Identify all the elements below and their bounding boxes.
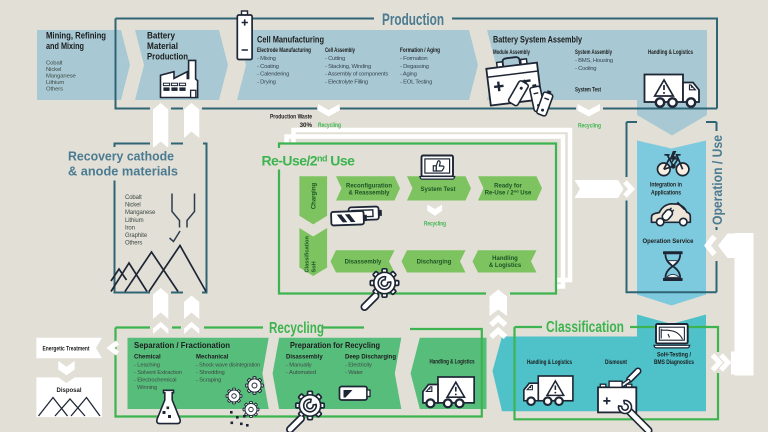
svg-text:- Leaching: - Leaching: [134, 363, 160, 369]
svg-text:- Aging: - Aging: [400, 72, 417, 78]
svg-text:Operation Service: Operation Service: [643, 238, 695, 245]
svg-text:Production: Production: [147, 52, 188, 62]
svg-text:Handling & Logistics: Handling & Logistics: [430, 360, 475, 366]
svg-text:- Scraping: - Scraping: [196, 378, 221, 384]
svg-text:Recycling: Recycling: [269, 320, 324, 337]
svg-text:- Shredding: - Shredding: [196, 370, 225, 376]
svg-text:and Mixing: and Mixing: [46, 41, 84, 51]
svg-text:Cobalt: Cobalt: [46, 61, 63, 67]
svg-text:Discharging: Discharging: [417, 260, 452, 266]
svg-text:- Automated: - Automated: [286, 370, 316, 376]
svg-text:- Calendering: - Calendering: [257, 72, 289, 78]
svg-text:Battery System Assembly: Battery System Assembly: [493, 35, 583, 46]
svg-text:Manganese: Manganese: [125, 210, 156, 216]
svg-text:Recovery cathode: Recovery cathode: [68, 149, 174, 164]
svg-text:Operation / Use: Operation / Use: [710, 135, 725, 225]
svg-text:- Coating: - Coating: [257, 64, 279, 70]
svg-text:- BMS, Housing: - BMS, Housing: [575, 58, 613, 64]
svg-text:Nickel: Nickel: [46, 67, 61, 73]
svg-text:Re-Use / 2nd Use: Re-Use / 2nd Use: [485, 189, 532, 197]
svg-text:System Test: System Test: [421, 187, 456, 193]
svg-text:Dismount: Dismount: [605, 360, 627, 366]
svg-text:Recycling: Recycling: [578, 123, 601, 130]
svg-text:Disassembly: Disassembly: [286, 355, 323, 361]
svg-text:Cell Manufacturing: Cell Manufacturing: [257, 35, 324, 46]
svg-text:- Electrolyte Filling: - Electrolyte Filling: [325, 79, 368, 85]
svg-text:Recycling: Recycling: [424, 221, 446, 228]
svg-text:System Test: System Test: [575, 87, 601, 94]
svg-text:- Cutting: - Cutting: [325, 56, 345, 62]
svg-text:- Degassing: - Degassing: [400, 64, 429, 70]
svg-text:30%: 30%: [300, 122, 313, 129]
svg-text:Classification: Classification: [546, 319, 624, 336]
svg-text:- Formation: - Formation: [400, 56, 427, 62]
svg-text:Lithium: Lithium: [125, 218, 144, 224]
svg-text:- Electrochemical: - Electrochemical: [134, 378, 176, 384]
svg-text:Electrode Manufacturing: Electrode Manufacturing: [257, 47, 311, 54]
svg-text:- Solvent Extraction: - Solvent Extraction: [134, 370, 182, 376]
svg-text:Iron: Iron: [125, 225, 135, 231]
svg-text:- EOL Testing: - EOL Testing: [400, 79, 432, 85]
svg-text:Material: Material: [147, 41, 178, 51]
svg-text:SoH-Testing /: SoH-Testing /: [657, 353, 691, 359]
svg-text:Disposal: Disposal: [56, 388, 81, 394]
svg-text:Reconfiguration: Reconfiguration: [346, 184, 392, 190]
svg-text:Formation / Aging: Formation / Aging: [400, 47, 440, 54]
svg-text:System Assembly: System Assembly: [575, 49, 612, 56]
svg-text:Graphite: Graphite: [125, 233, 148, 239]
svg-text:Charging: Charging: [312, 183, 318, 210]
svg-text:Separation / Fractionation: Separation / Fractionation: [134, 340, 230, 350]
svg-text:Handling: Handling: [492, 256, 518, 262]
svg-text:Nickel: Nickel: [125, 203, 141, 209]
svg-text:Cobalt: Cobalt: [125, 195, 142, 201]
svg-text:- Manually: - Manually: [286, 363, 312, 369]
svg-text:Re-Use/2nd Use: Re-Use/2nd Use: [262, 153, 356, 169]
svg-text:- Electricity: - Electricity: [345, 363, 372, 369]
svg-text:SoH: SoH: [312, 261, 318, 272]
svg-text:Disassembly: Disassembly: [345, 260, 382, 266]
svg-text:- Mixing: - Mixing: [257, 56, 276, 62]
svg-text:Manganese: Manganese: [46, 74, 77, 80]
svg-text:Lithium: Lithium: [46, 80, 64, 86]
svg-text:Handling & Logistics: Handling & Logistics: [648, 49, 693, 56]
svg-text:BMS Diagnostics: BMS Diagnostics: [654, 360, 695, 366]
svg-text:Others: Others: [46, 87, 63, 93]
svg-text:Module Assembly: Module Assembly: [493, 49, 530, 56]
svg-text:Production Waste: Production Waste: [270, 114, 312, 121]
svg-text:Chemical: Chemical: [134, 355, 161, 361]
svg-text:Cell Assembly: Cell Assembly: [325, 47, 355, 54]
svg-text:- Water: - Water: [345, 370, 363, 376]
svg-text:& Logistics: & Logistics: [489, 263, 522, 269]
svg-text:Winning: Winning: [137, 385, 157, 391]
svg-text:Others: Others: [125, 241, 142, 247]
svg-text:Applications: Applications: [651, 190, 681, 197]
svg-text:- Shock wave disintegration: - Shock wave disintegration: [196, 363, 260, 369]
svg-text:Classification: Classification: [305, 236, 311, 273]
svg-text:Energetic Treatment: Energetic Treatment: [43, 347, 90, 353]
svg-text:& anode materials: & anode materials: [68, 164, 178, 179]
svg-text:Production: Production: [382, 10, 444, 29]
svg-text:Battery: Battery: [147, 31, 176, 41]
svg-text:Integration in: Integration in: [650, 182, 682, 189]
svg-text:Recycling: Recycling: [318, 122, 341, 129]
svg-text:& Reassembly: & Reassembly: [348, 191, 390, 197]
svg-text:- Assembly of components: - Assembly of components: [325, 72, 388, 78]
svg-text:Mining, Refining: Mining, Refining: [46, 31, 106, 41]
svg-text:Preparation for Recycling: Preparation for Recycling: [290, 340, 380, 350]
svg-text:Mechanical: Mechanical: [196, 355, 229, 361]
svg-text:Handling & Logistics: Handling & Logistics: [527, 360, 572, 366]
svg-text:Deep Discharging: Deep Discharging: [345, 355, 396, 361]
svg-text:- Drying: - Drying: [257, 79, 276, 85]
svg-text:- Stacking, Winding: - Stacking, Winding: [325, 64, 371, 70]
svg-text:- Cooling: - Cooling: [575, 66, 596, 72]
